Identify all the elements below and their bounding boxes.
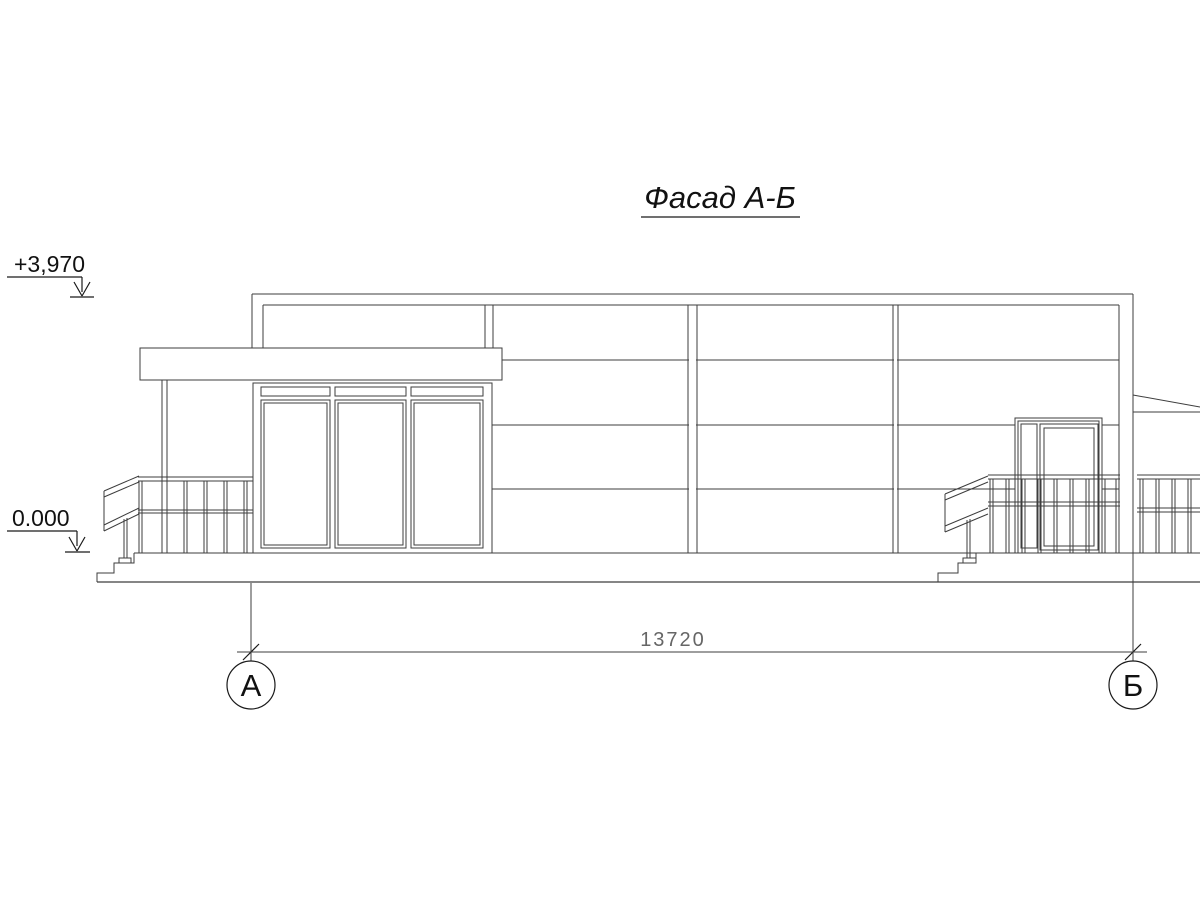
elevation-bottom-value: 0.000	[12, 505, 70, 531]
facade-columns	[162, 294, 1133, 582]
left-steps	[97, 553, 134, 582]
dimension-line: 13720	[237, 629, 1147, 660]
elevation-bottom-leader	[7, 531, 90, 552]
dimension-value: 13720	[640, 629, 706, 651]
elevation-top-value: +3,970	[14, 251, 85, 277]
axis-b: Б	[1109, 582, 1157, 709]
drawing-title-text: Фасад А-Б	[644, 180, 796, 215]
facade-drawing-sheet: +3,970 0.000 Фасад А-Б 13720 А Б	[0, 0, 1200, 900]
side-structure	[1133, 395, 1200, 412]
ground-and-steps	[97, 553, 1200, 582]
left-railing	[104, 476, 253, 563]
axis-a: А	[227, 583, 275, 709]
drawing-title: Фасад А-Б	[641, 180, 800, 217]
elevation-mark-bottom: 0.000	[7, 505, 90, 552]
entrance-canopy	[140, 348, 502, 380]
elevation-top-leader	[7, 277, 94, 297]
right-railing-outer	[1137, 475, 1200, 553]
axis-a-label: А	[241, 668, 262, 703]
facade-drawing-canvas: +3,970 0.000 Фасад А-Б 13720 А Б	[0, 0, 1200, 900]
left-stair-rail	[104, 476, 139, 563]
right-railing	[945, 475, 1200, 563]
storefront-glazing	[253, 383, 492, 553]
elevation-mark-top: +3,970	[7, 251, 94, 297]
axis-b-label: Б	[1123, 668, 1143, 703]
